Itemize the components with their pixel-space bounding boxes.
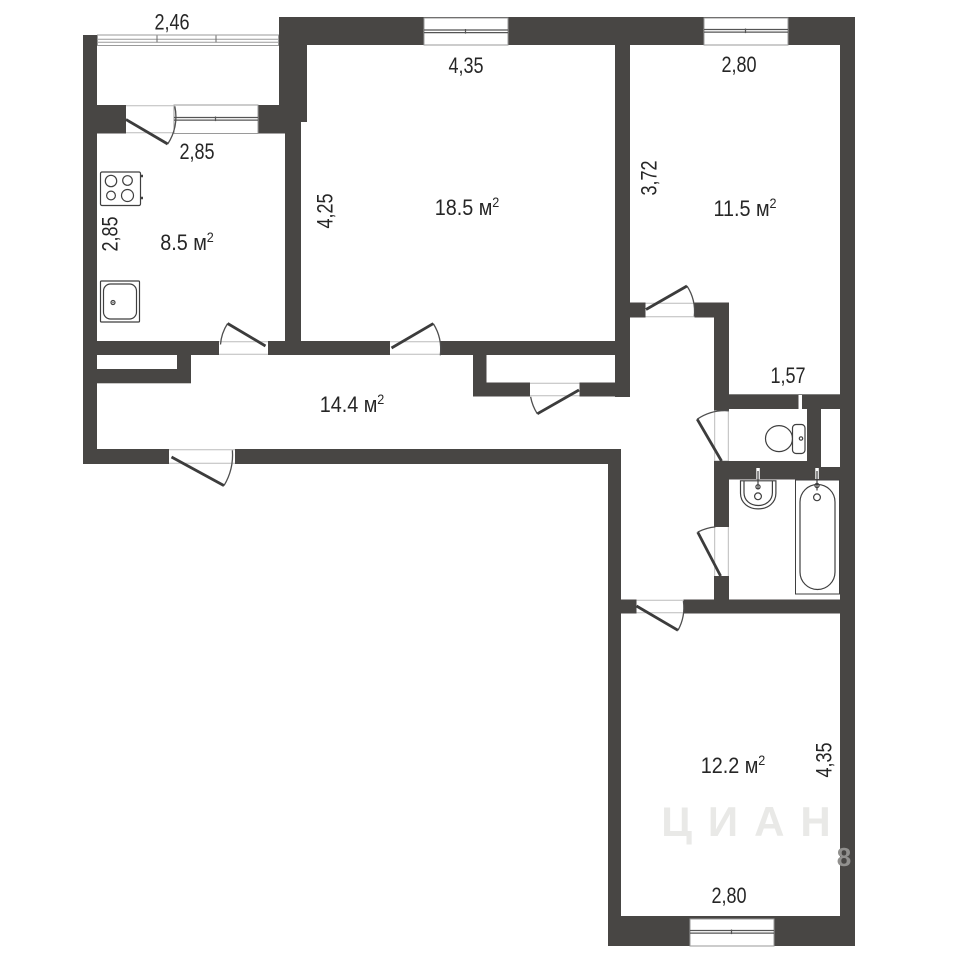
- svg-text:3,72: 3,72: [638, 160, 662, 195]
- svg-text:2,85: 2,85: [99, 216, 123, 251]
- svg-text:4,25: 4,25: [314, 193, 338, 228]
- svg-text:2,80: 2,80: [711, 884, 746, 908]
- svg-text:2,80: 2,80: [721, 53, 756, 77]
- svg-text:2,46: 2,46: [154, 11, 189, 35]
- svg-text:ЦИАН: ЦИАН: [661, 798, 847, 845]
- svg-text:1,57: 1,57: [770, 364, 805, 388]
- svg-text:4,35: 4,35: [813, 742, 837, 777]
- svg-text:2,85: 2,85: [179, 140, 214, 164]
- svg-text:14.4 м2: 14.4 м2: [320, 391, 385, 417]
- svg-text:11.5 м2: 11.5 м2: [713, 195, 776, 221]
- svg-text:12.2 м2: 12.2 м2: [701, 752, 766, 778]
- svg-text:8: 8: [837, 842, 851, 872]
- svg-text:18.5 м2: 18.5 м2: [435, 194, 500, 220]
- svg-text:4,35: 4,35: [448, 54, 483, 78]
- svg-text:8.5 м2: 8.5 м2: [160, 229, 214, 255]
